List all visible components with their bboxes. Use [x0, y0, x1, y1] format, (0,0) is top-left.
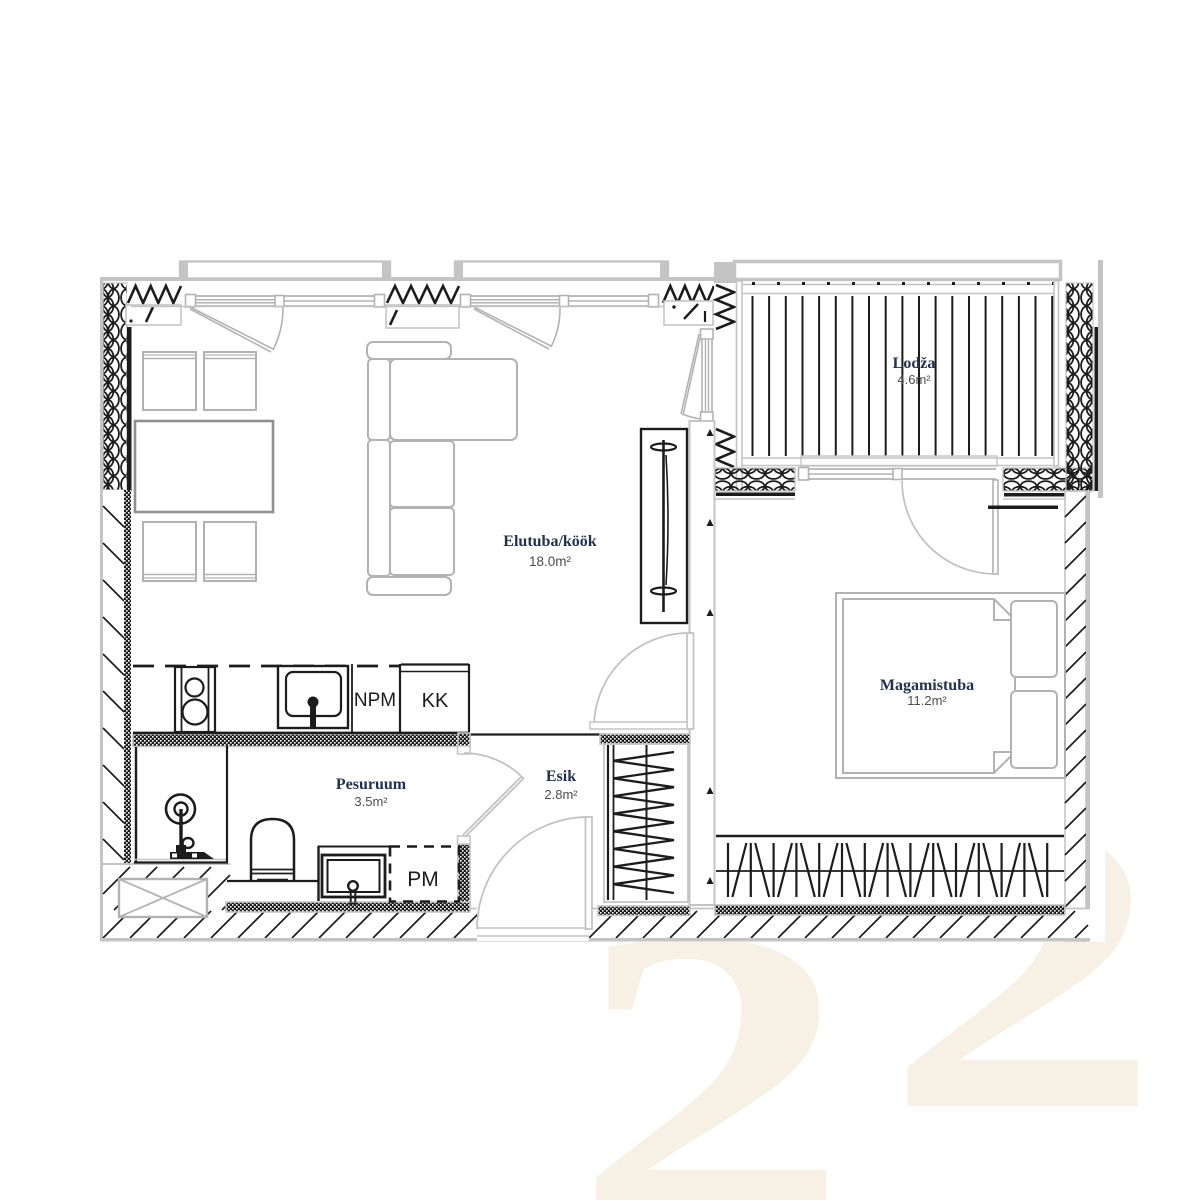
svg-text:NPM: NPM — [354, 690, 396, 711]
svg-text:Lodža: Lodža — [893, 355, 936, 372]
svg-text:PM: PM — [407, 868, 439, 891]
svg-text:11.2m²: 11.2m² — [907, 693, 947, 708]
svg-text:Pesuruum: Pesuruum — [336, 776, 407, 793]
svg-text:Esik: Esik — [546, 768, 576, 785]
svg-text:Magamistuba: Magamistuba — [880, 677, 974, 694]
svg-text:Elutuba/köök: Elutuba/köök — [503, 533, 596, 550]
svg-text:KK: KK — [422, 690, 449, 712]
svg-text:18.0m²: 18.0m² — [529, 554, 572, 569]
svg-text:3.5m²: 3.5m² — [354, 794, 388, 809]
svg-text:2.8m²: 2.8m² — [544, 787, 578, 802]
svg-text:4.6m²: 4.6m² — [897, 372, 931, 387]
